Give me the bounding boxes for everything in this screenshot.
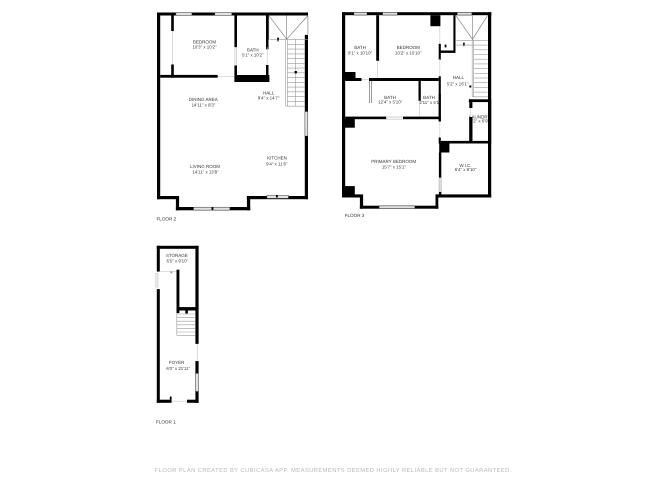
svg-text:6'0" x 21'11": 6'0" x 21'11" [166,366,190,371]
svg-text:7'2" x 6'9": 7'2" x 6'9" [470,119,490,124]
svg-text:LIVING ROOM: LIVING ROOM [190,164,220,169]
svg-text:BEDROOM: BEDROOM [397,45,421,50]
svg-text:12'4" x 5'10": 12'4" x 5'10" [378,100,403,105]
svg-text:9'4" x 11'6": 9'4" x 11'6" [266,161,288,166]
svg-text:10'3" x 10'2": 10'3" x 10'2" [192,45,217,50]
svg-text:2'11" x 5'1": 2'11" x 5'1" [419,100,441,105]
svg-text:14'11" x 8'3": 14'11" x 8'3" [192,102,216,107]
svg-text:15'7" x 15'1": 15'7" x 15'1" [382,164,407,169]
svg-text:FLOOR 2: FLOOR 2 [157,217,177,222]
svg-text:BATH: BATH [354,45,366,50]
svg-text:KITCHEN: KITCHEN [267,155,287,160]
svg-text:PRIMARY BEDROOM: PRIMARY BEDROOM [371,159,416,164]
svg-text:14'11" x 13'8": 14'11" x 13'8" [192,169,219,174]
svg-text:FLOOR 1: FLOOR 1 [156,420,176,425]
svg-text:5'2" x 16'1": 5'2" x 16'1" [447,81,469,86]
svg-text:9'4" x 14'7": 9'4" x 14'7" [258,96,280,101]
svg-text:FLOOR PLAN CREATED BY CUBICASA: FLOOR PLAN CREATED BY CUBICASA APP. MEAS… [155,467,512,474]
svg-text:6'5" x 9'10": 6'5" x 9'10" [166,259,188,264]
svg-text:9'1" x 10'10": 9'1" x 10'10" [348,51,373,56]
svg-text:FOYER: FOYER [169,360,185,365]
svg-text:HALL: HALL [453,75,465,80]
svg-text:10'2" x 10'10": 10'2" x 10'10" [395,51,422,56]
svg-text:5'1" x 10'2": 5'1" x 10'2" [242,53,264,58]
svg-text:STORAGE: STORAGE [166,253,188,258]
svg-text:6'4" x 8'10": 6'4" x 8'10" [455,167,477,172]
svg-text:FLOOR 3: FLOOR 3 [345,213,365,218]
